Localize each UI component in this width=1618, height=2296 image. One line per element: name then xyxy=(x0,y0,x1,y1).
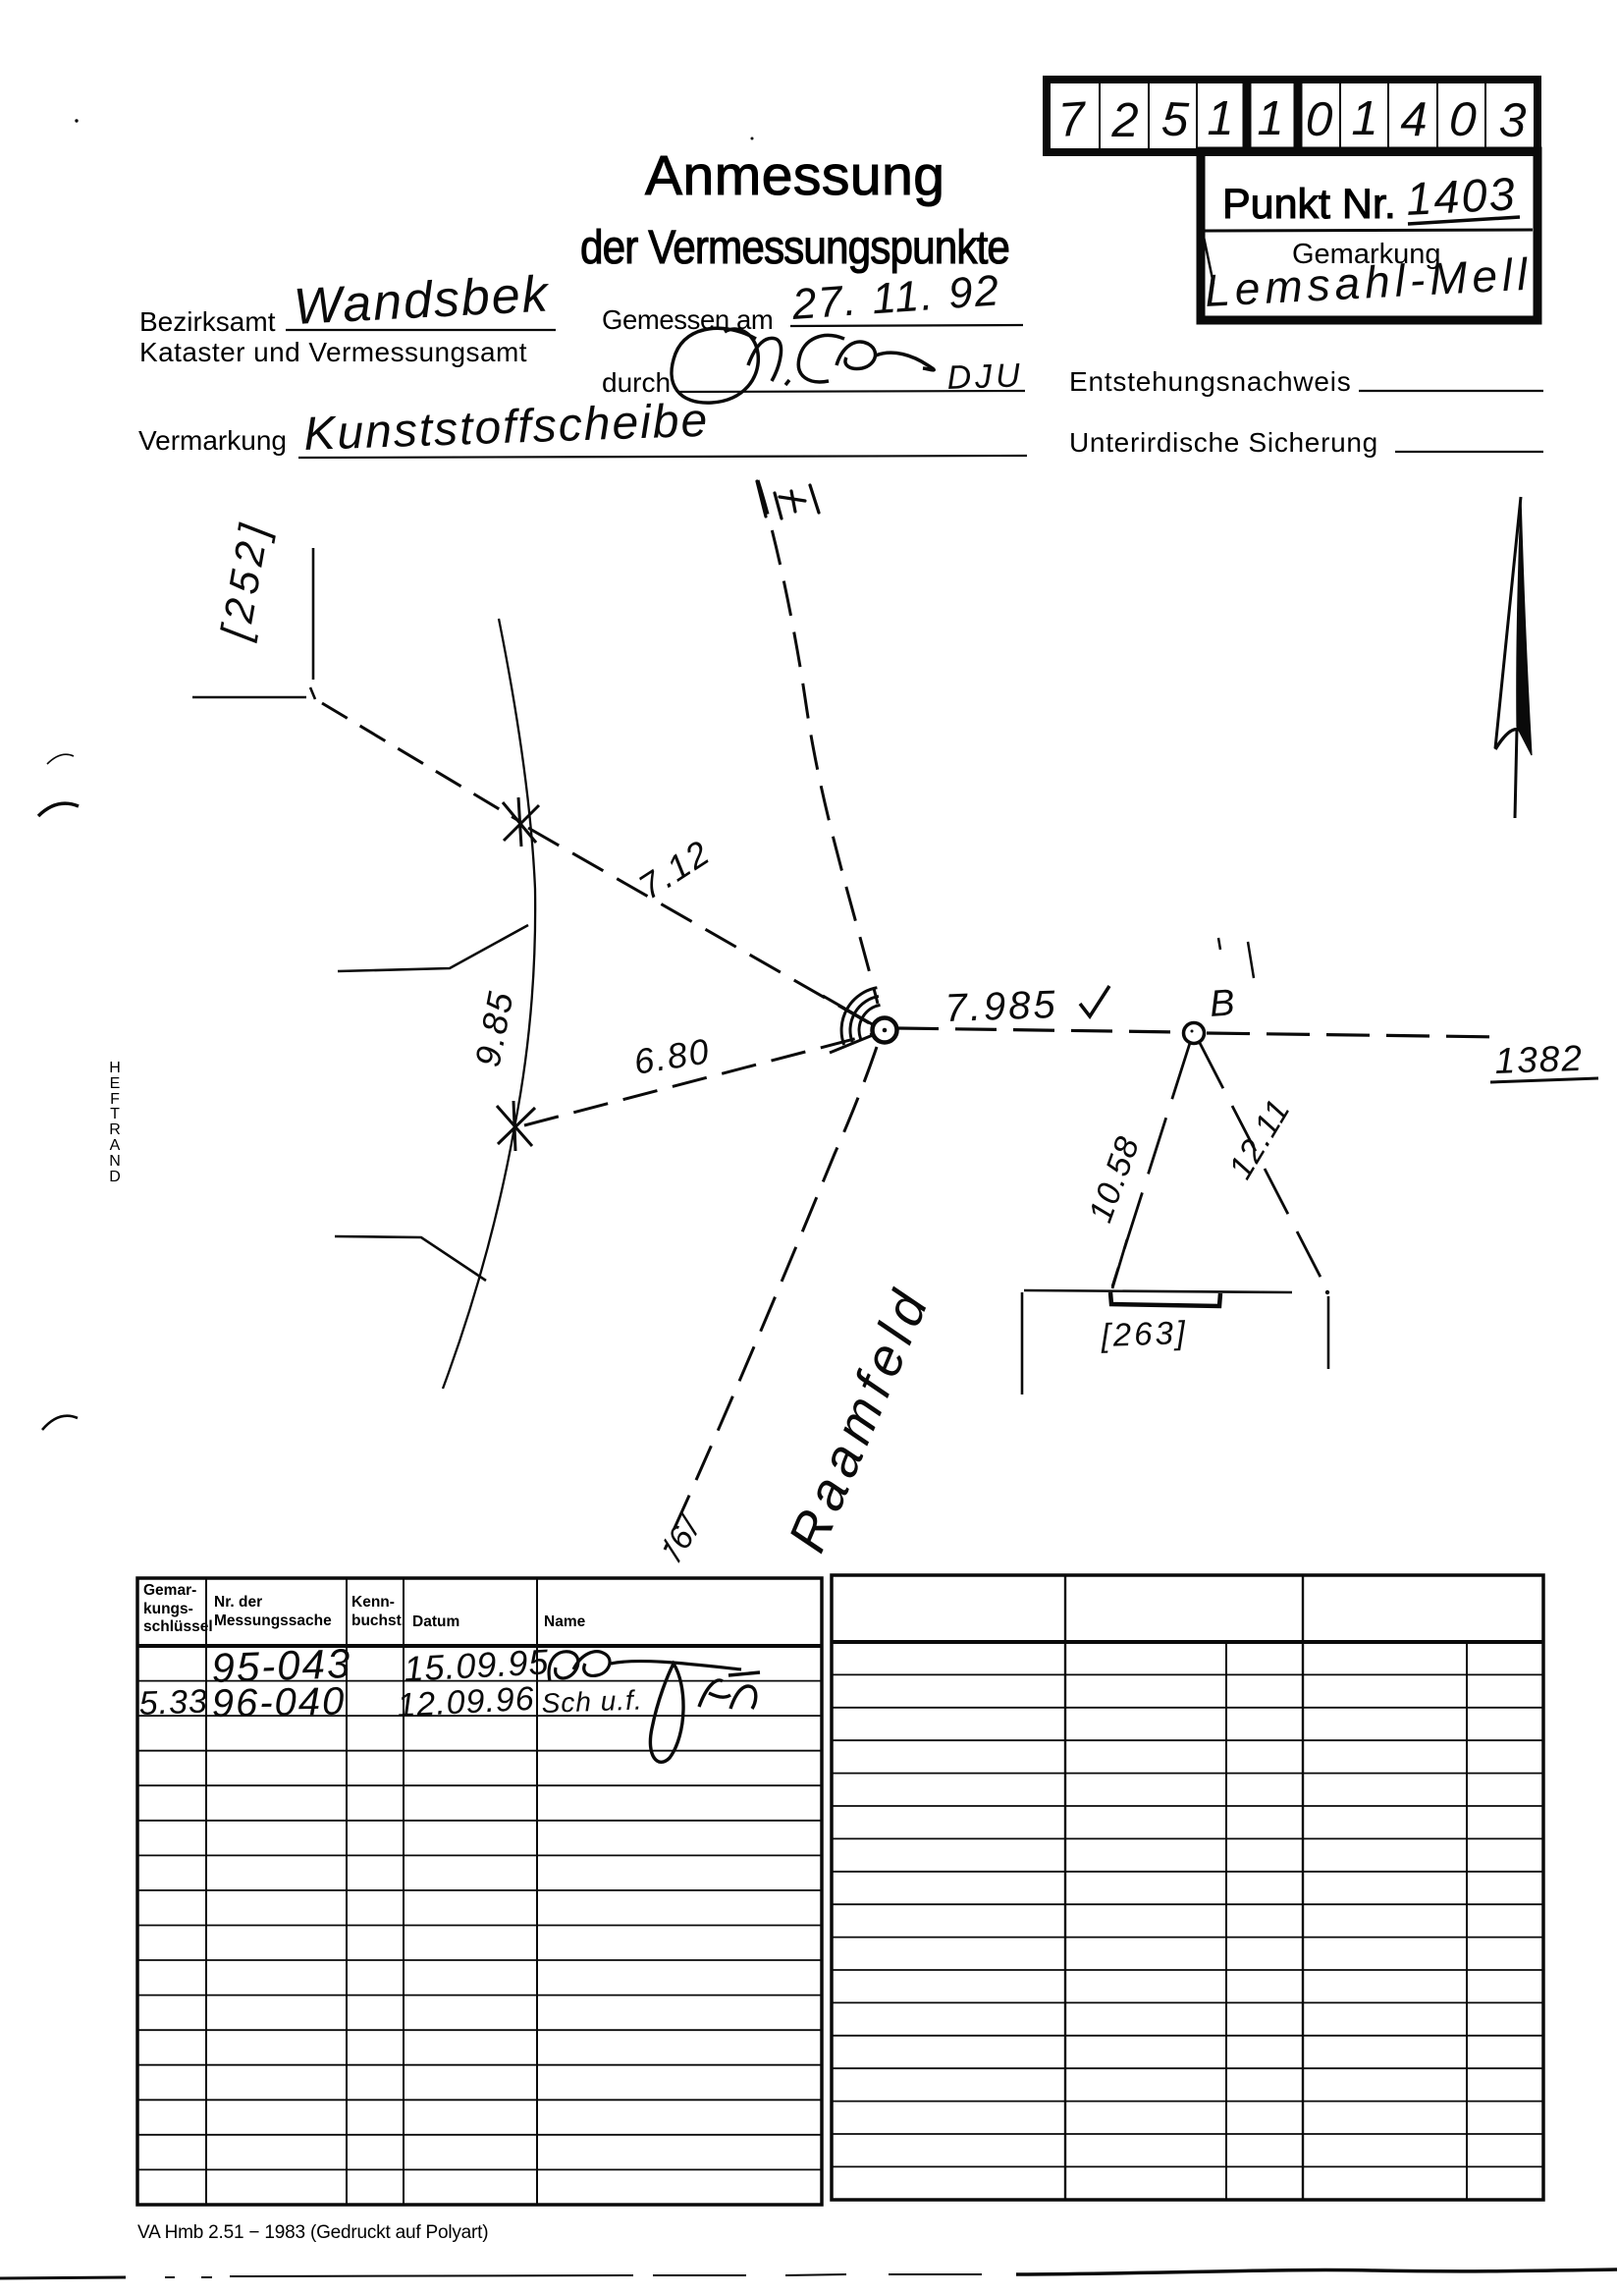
svg-text:9.85: 9.85 xyxy=(467,987,521,1069)
svg-text:[263]: [263] xyxy=(1100,1314,1189,1353)
svg-text:3: 3 xyxy=(1498,94,1527,148)
svg-text:10.58: 10.58 xyxy=(1082,1131,1148,1228)
svg-text:Lemsahl-Mell: Lemsahl-Mell xyxy=(1204,248,1534,316)
svg-text:Sch u.f.: Sch u.f. xyxy=(541,1684,643,1719)
svg-text:Kunststoffscheibe: Kunststoffscheibe xyxy=(303,395,710,461)
svg-text:/6/: /6/ xyxy=(653,1508,709,1567)
svg-text:4: 4 xyxy=(1400,93,1427,146)
svg-text:0: 0 xyxy=(1448,92,1478,146)
svg-text:1: 1 xyxy=(1351,92,1377,145)
svg-text:96-040: 96-040 xyxy=(211,1680,346,1725)
svg-text:1403: 1403 xyxy=(1405,167,1518,225)
svg-text:1: 1 xyxy=(1207,92,1233,145)
svg-text:5: 5 xyxy=(1160,92,1191,146)
svg-text:6.80: 6.80 xyxy=(631,1030,714,1082)
svg-text:1: 1 xyxy=(1257,92,1283,145)
svg-text:[252]: [252] xyxy=(211,516,278,644)
svg-text:B: B xyxy=(1209,982,1236,1025)
svg-text:5.33: 5.33 xyxy=(138,1683,208,1722)
svg-text:0: 0 xyxy=(1305,93,1333,147)
svg-text:1382: 1382 xyxy=(1494,1038,1585,1081)
svg-text:Raamfeld: Raamfeld xyxy=(778,1278,942,1560)
svg-text:2: 2 xyxy=(1110,94,1138,147)
svg-text:7: 7 xyxy=(1056,92,1089,147)
svg-text:27. 11. 92: 27. 11. 92 xyxy=(789,266,1001,329)
svg-text:Wandsbek: Wandsbek xyxy=(293,265,552,336)
svg-text:12.09.96: 12.09.96 xyxy=(396,1680,535,1724)
svg-text:7.985: 7.985 xyxy=(944,983,1059,1030)
